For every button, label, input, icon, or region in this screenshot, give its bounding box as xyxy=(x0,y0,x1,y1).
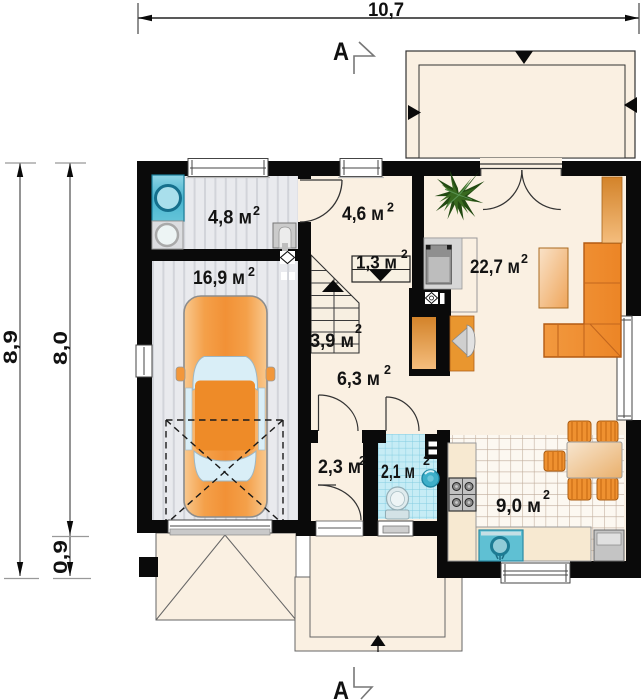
svg-text:10,7: 10,7 xyxy=(368,0,404,21)
svg-text:2: 2 xyxy=(248,265,255,279)
svg-text:2,1 м: 2,1 м xyxy=(381,461,415,483)
svg-text:8,9: 8,9 xyxy=(1,330,22,364)
svg-text:2: 2 xyxy=(543,488,550,502)
svg-text:2: 2 xyxy=(253,204,260,218)
svg-text:2: 2 xyxy=(423,454,430,468)
svg-text:0,9: 0,9 xyxy=(51,540,72,574)
svg-text:8,0: 8,0 xyxy=(51,331,72,365)
svg-text:22,7 м: 22,7 м xyxy=(470,256,520,278)
svg-text:2: 2 xyxy=(387,201,394,215)
svg-text:2: 2 xyxy=(384,363,391,377)
svg-text:9,0 м: 9,0 м xyxy=(496,495,541,517)
svg-text:2: 2 xyxy=(359,454,366,468)
svg-text:4,6 м: 4,6 м xyxy=(342,203,384,225)
svg-text:2,3 м: 2,3 м xyxy=(318,456,361,478)
svg-text:A: A xyxy=(333,38,349,66)
svg-text:A: A xyxy=(333,677,349,700)
svg-text:16,9 м: 16,9 м xyxy=(193,267,245,289)
svg-text:1,3 м: 1,3 м xyxy=(356,253,397,273)
svg-text:4,8 м: 4,8 м xyxy=(208,207,252,229)
svg-text:2: 2 xyxy=(401,247,408,261)
svg-text:2: 2 xyxy=(355,322,362,336)
svg-text:2: 2 xyxy=(521,252,528,266)
svg-text:3,9 м: 3,9 м xyxy=(310,330,354,352)
svg-text:6,3 м: 6,3 м xyxy=(337,368,380,390)
